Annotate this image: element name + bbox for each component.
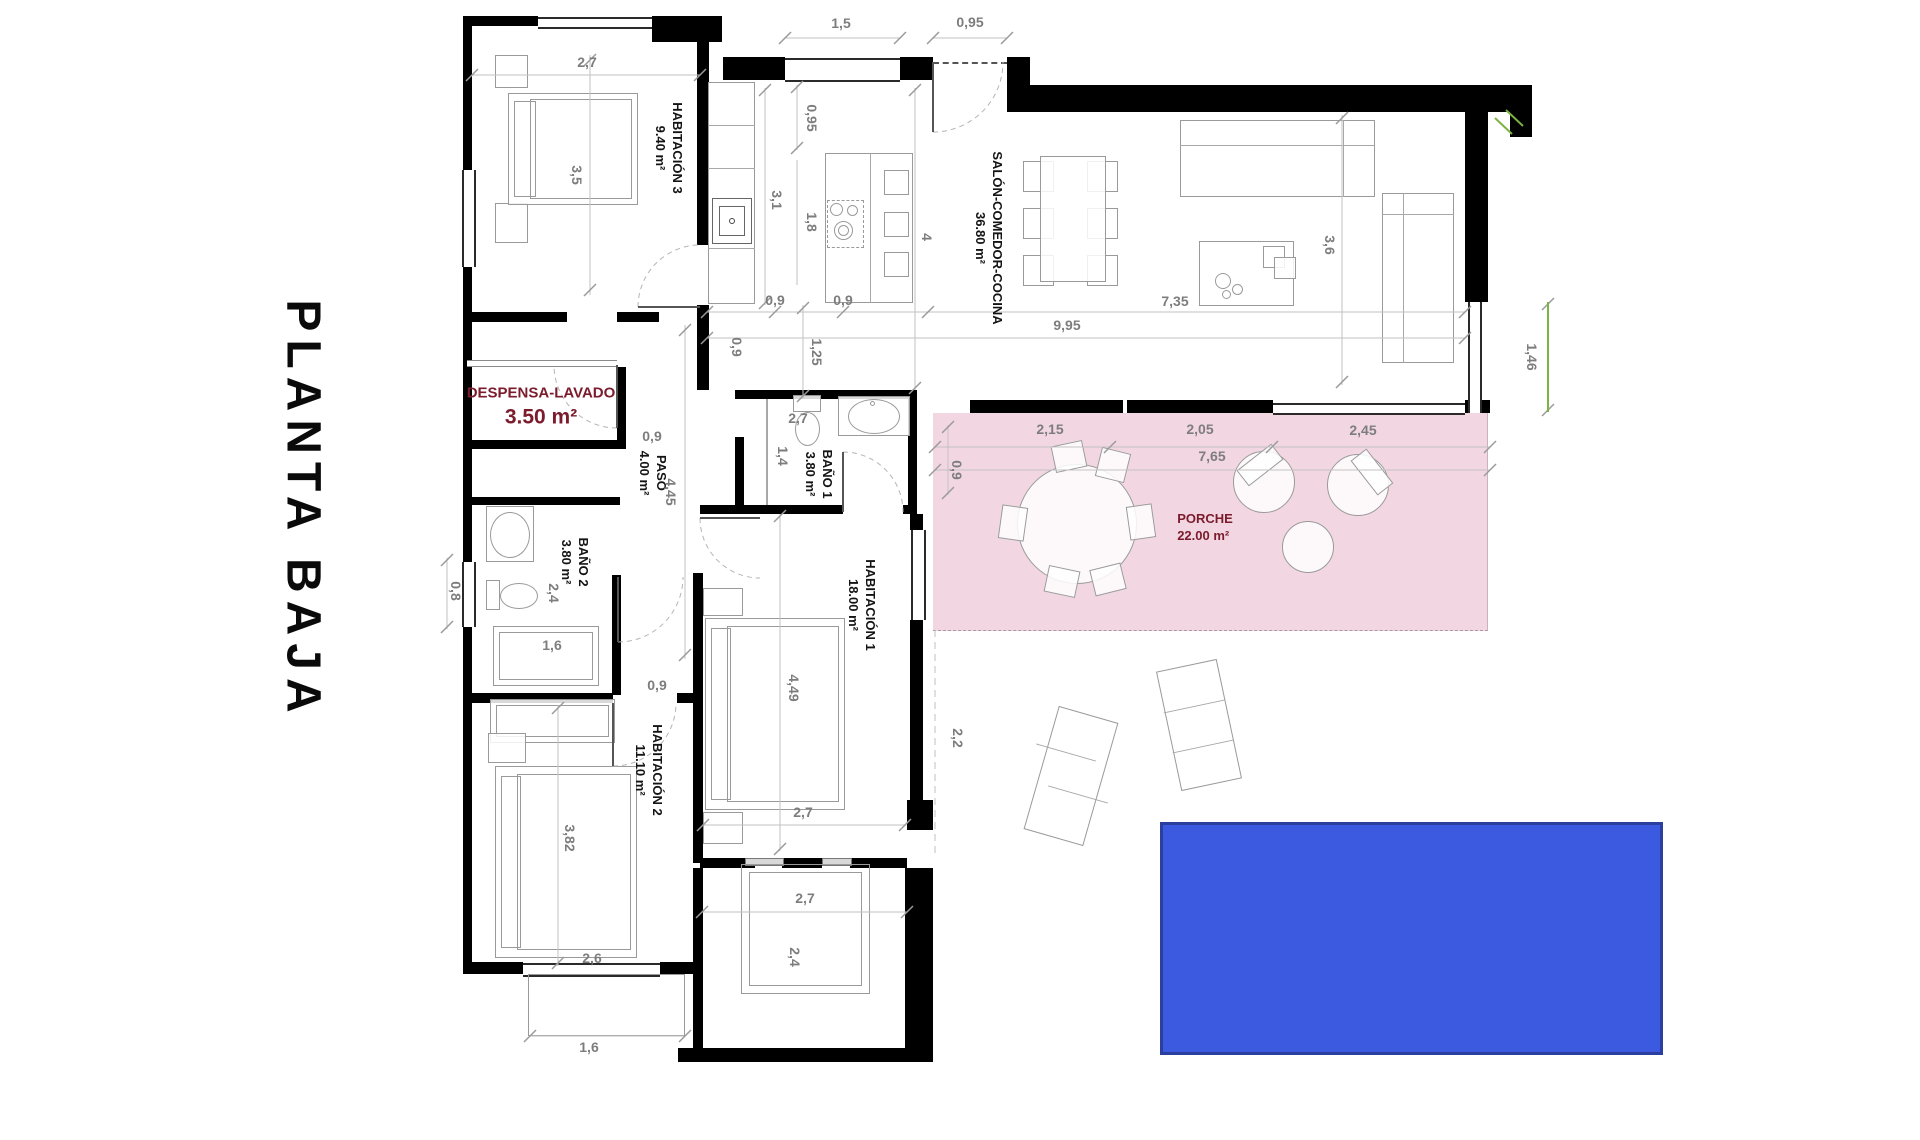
dimension-tick	[679, 324, 691, 336]
sun-lounger	[1156, 659, 1242, 791]
entry-step	[528, 974, 685, 1036]
entry-opening	[933, 62, 1007, 64]
dimension-tick	[441, 621, 453, 633]
dimension-tick	[791, 81, 803, 93]
burner-icon	[830, 203, 843, 216]
wall-segment	[910, 514, 923, 530]
room-label-bano1: BAÑO 1 3.80 m²	[801, 449, 835, 498]
dining-table	[1040, 156, 1106, 282]
wall-segment	[678, 1048, 933, 1062]
dimension-label: 1,6	[542, 637, 561, 653]
dimension-label: 4	[919, 233, 935, 241]
burner-icon	[847, 205, 858, 216]
side-table	[1282, 521, 1334, 573]
wall-segment	[697, 305, 709, 390]
wall-segment	[612, 575, 621, 695]
dimension-label: 3,1	[769, 190, 785, 209]
wall-segment	[463, 267, 472, 312]
wall-segment	[723, 57, 785, 80]
window	[462, 562, 476, 627]
wall-segment	[693, 573, 703, 863]
dimension-label: 0,95	[804, 104, 820, 131]
stool	[884, 212, 909, 237]
dimension-label: 3,82	[562, 824, 578, 851]
toilet	[486, 580, 500, 610]
dimension-label: 0,8	[448, 581, 464, 600]
wall-segment	[463, 16, 538, 26]
floor-plan: PLANTA BAJA	[0, 0, 1920, 1140]
wall-segment	[907, 800, 933, 830]
plan-title: PLANTA BAJA	[276, 299, 331, 720]
nightstand	[703, 812, 743, 844]
wall-segment	[1127, 400, 1273, 413]
mattress	[727, 626, 839, 802]
dimension-label: 2,7	[793, 804, 812, 820]
dimension-label: 3,5	[569, 165, 585, 184]
sink	[490, 512, 530, 558]
shelf-line	[467, 360, 617, 367]
dimension-tick	[441, 554, 453, 566]
dimension-label: 0,9	[642, 428, 661, 444]
dimension-tick	[791, 142, 803, 154]
swimming-pool	[1160, 822, 1663, 1055]
dimension-label: 2,7	[577, 54, 596, 70]
nightstand	[703, 588, 743, 616]
dimension-label: 2,4	[787, 947, 803, 966]
dimension-label: 2,05	[1186, 421, 1213, 437]
wall-segment	[735, 437, 744, 512]
dimension-tick	[1001, 32, 1013, 44]
sun-lounger	[1024, 706, 1119, 846]
dimension-tick	[894, 32, 906, 44]
dimension-label: 9,95	[1053, 317, 1080, 333]
chair	[1126, 503, 1156, 540]
wall-segment	[463, 962, 523, 974]
dimension-label: 1,4	[775, 446, 791, 465]
room-label-salon: SALÓN-COMEDOR-COCINA 36.80 m²	[971, 151, 1005, 324]
dimension-tick	[922, 306, 934, 318]
wall-segment	[1007, 85, 1532, 112]
wall-segment	[700, 505, 843, 514]
landscape-marks	[1495, 110, 1548, 412]
dimension-tick	[909, 84, 921, 96]
wall-segment	[1465, 112, 1488, 302]
faucet-icon	[729, 218, 735, 224]
wall-segment	[463, 312, 567, 322]
dimension-label: 0,9	[949, 460, 965, 479]
dimension-label: 2,7	[795, 890, 814, 906]
wall-segment	[693, 868, 703, 1048]
dimension-tick	[927, 32, 939, 44]
sofa	[1382, 193, 1454, 363]
wall-segment	[617, 367, 626, 447]
window	[911, 530, 926, 620]
wall-segment	[463, 497, 620, 505]
wall-segment	[463, 440, 626, 449]
wall-segment	[735, 390, 744, 399]
dimension-label: 0,9	[729, 337, 745, 356]
dimension-label: 4,49	[786, 674, 802, 701]
dimension-tick	[584, 284, 596, 296]
dimension-label: 1,6	[579, 1039, 598, 1055]
dimension-label: 1,5	[831, 15, 850, 31]
room-label-despensa: DESPENSA-LAVADO 3.50 m²	[467, 384, 616, 431]
dimension-tick	[1542, 298, 1554, 310]
room-label-habitacion3: HABITACIÓN 3 9.40 m²	[651, 102, 685, 193]
dimension-tick	[1336, 376, 1348, 388]
wall-segment	[617, 312, 659, 322]
dimension-label: 2,4	[546, 583, 562, 602]
dimension-tick	[759, 84, 771, 96]
dimension-label: 7,35	[1161, 293, 1188, 309]
room-label-porche: PORCHE 22.00 m²	[1177, 511, 1233, 545]
dimension-label: 0,9	[647, 677, 666, 693]
dimension-label: 0,9	[765, 292, 784, 308]
dimension-tick	[1542, 404, 1554, 416]
wall-segment	[463, 497, 472, 562]
window	[785, 58, 900, 82]
dimension-label: 1,46	[1524, 343, 1540, 370]
wall-segment	[463, 26, 472, 170]
dimension-label: 2,2	[950, 728, 966, 747]
burner-icon	[838, 225, 849, 236]
wall-segment	[970, 400, 1123, 413]
stool	[884, 252, 909, 277]
wall-segment	[1510, 112, 1532, 137]
stool	[884, 170, 909, 195]
wall-segment	[910, 620, 923, 800]
dimension-label: 4,45	[663, 478, 679, 505]
wall-segment	[1007, 57, 1030, 85]
dimension-label: 0,9	[833, 292, 852, 308]
dimension-label: 2,7	[788, 410, 807, 426]
sofa	[1180, 120, 1375, 197]
chair	[998, 504, 1028, 541]
nightstand	[488, 733, 526, 763]
dimension-tick	[774, 843, 786, 855]
wall-segment	[905, 868, 933, 1048]
dimension-label: 0,95	[956, 14, 983, 30]
shower-screen	[766, 399, 768, 505]
window	[462, 170, 476, 267]
window	[1273, 403, 1465, 415]
wall-segment	[900, 57, 933, 80]
nightstand	[495, 203, 528, 243]
mattress	[517, 774, 631, 950]
dimension-tick	[797, 302, 809, 314]
dimension-label: 1,25	[809, 338, 825, 365]
window	[538, 17, 652, 29]
wall-segment	[463, 627, 472, 972]
dimension-label: 2,6	[582, 950, 601, 966]
room-label-habitacion2: HABITACIÓN 2 11.10 m²	[631, 724, 665, 815]
kitchen-counter	[708, 82, 755, 304]
dimension-label: 7,65	[1198, 448, 1225, 464]
dimension-tick	[679, 649, 691, 661]
dimension-tick	[779, 32, 791, 44]
dimension-label: 2,15	[1036, 421, 1063, 437]
nightstand	[495, 55, 528, 88]
dimension-label: 3,6	[1322, 235, 1338, 254]
dimension-label: 2,45	[1349, 422, 1376, 438]
dimension-label: 1,8	[804, 212, 820, 231]
room-label-bano2: BAÑO 2 3.80 m²	[557, 537, 591, 586]
window	[1468, 302, 1482, 413]
wall-segment	[652, 16, 722, 42]
room-label-habitacion1: HABITACIÓN 1 18.00 m²	[844, 559, 878, 650]
